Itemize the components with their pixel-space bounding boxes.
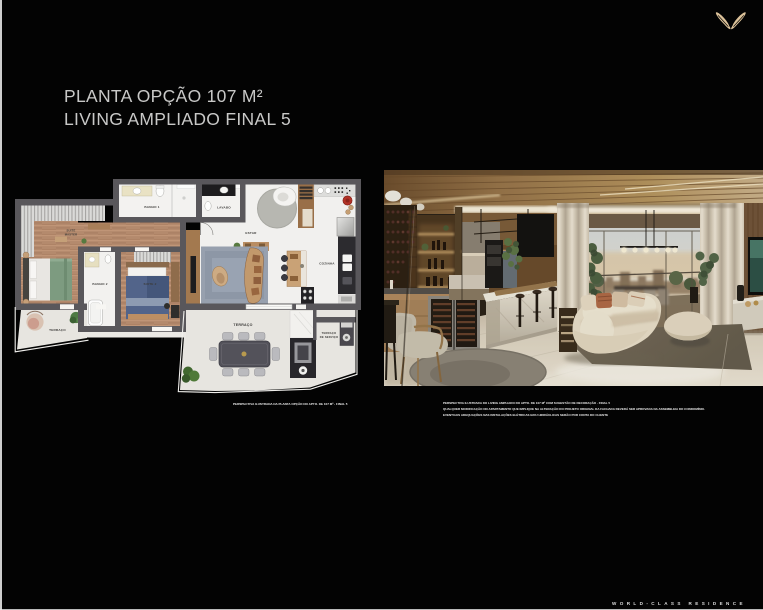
svg-text:BANHO 1: BANHO 1	[144, 205, 159, 209]
svg-text:TERRAÇO: TERRAÇO	[233, 323, 252, 327]
svg-text:ESTAR: ESTAR	[245, 231, 257, 235]
svg-text:DE SERVIÇO: DE SERVIÇO	[320, 335, 339, 339]
svg-text:MASTER: MASTER	[65, 233, 78, 237]
svg-text:TERRAÇO: TERRAÇO	[322, 331, 337, 335]
svg-text:COZINHA: COZINHA	[319, 262, 335, 266]
svg-text:SUITE: SUITE	[67, 229, 76, 233]
svg-text:LAVABO: LAVABO	[217, 206, 231, 210]
svg-text:TERRAÇO: TERRAÇO	[49, 328, 66, 332]
svg-text:BANHO 2: BANHO 2	[92, 282, 107, 286]
svg-text:SUITE 2: SUITE 2	[143, 282, 156, 286]
